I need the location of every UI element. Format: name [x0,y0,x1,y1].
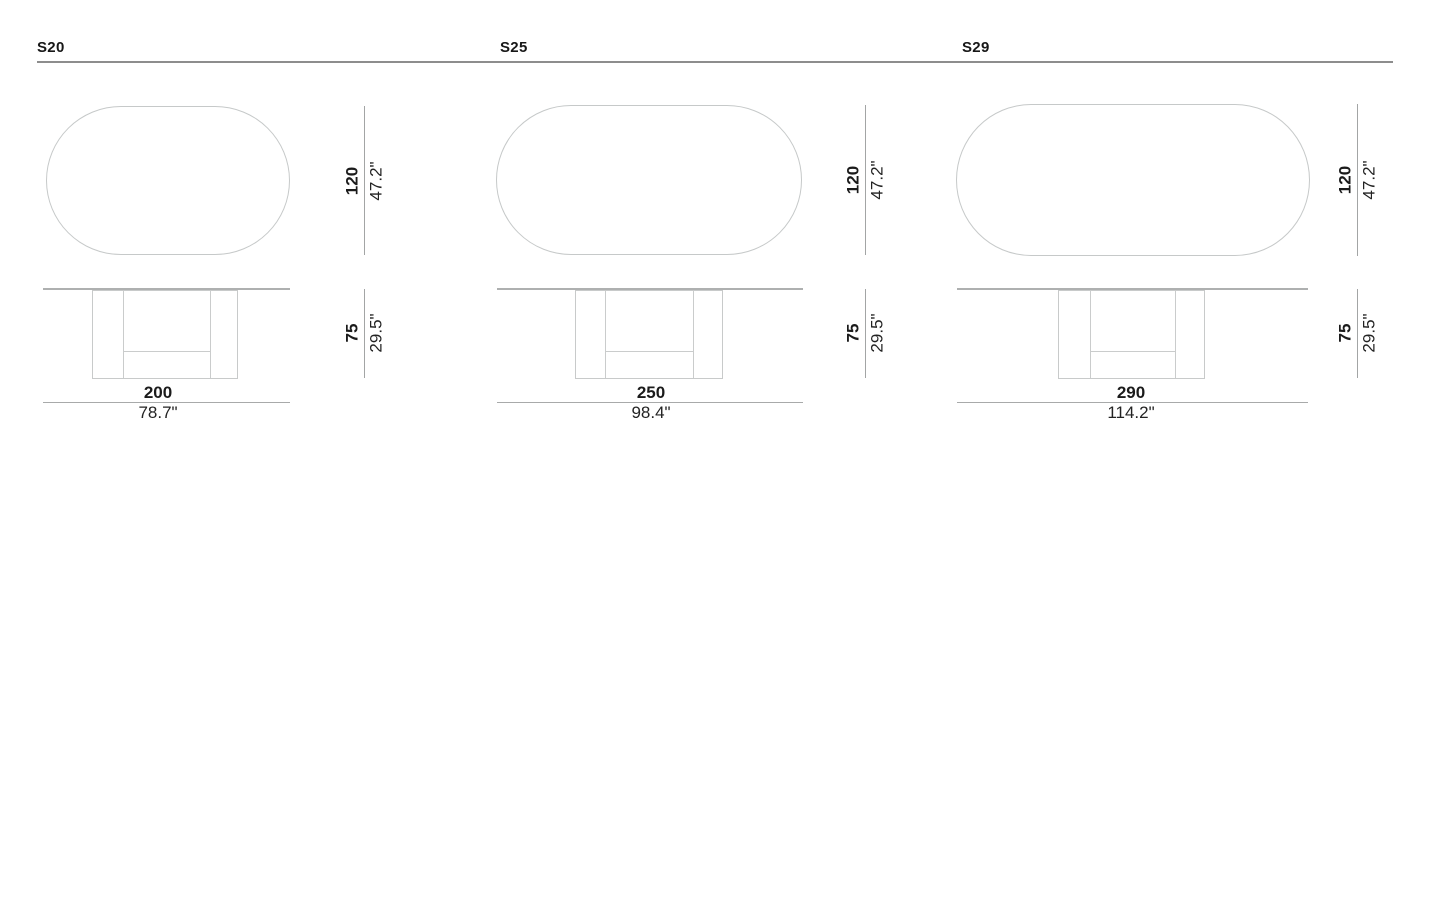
pedestal-shelf-line [1090,351,1176,352]
height-metric-value: 75 [845,324,862,343]
top-view-outline [956,104,1310,256]
length-metric-value: 290 [1061,384,1201,401]
pedestal-panel-line-left [605,291,606,378]
pedestal-panel-line-right [210,291,211,378]
header-rule [37,61,1393,63]
height-imperial-value: 29.5" [869,313,886,352]
length-metric-value: 250 [581,384,721,401]
pedestal-shelf-line [605,351,694,352]
pedestal-panel-line-left [123,291,124,378]
dimension-sheet: S20 120 47.2" 75 29.5" 200 78.7" S25 [0,0,1440,900]
length-metric-value: 200 [88,384,228,401]
model-label: S20 [37,39,65,56]
height-metric-value: 75 [344,324,361,343]
height-imperial-value: 29.5" [1361,313,1378,352]
length-imperial-value: 114.2" [1061,404,1201,421]
pedestal-panel-line-right [1175,291,1176,378]
top-view-outline [496,105,802,255]
height-metric-value: 75 [1337,324,1354,343]
pedestal-panel-line-left [1090,291,1091,378]
model-label: S25 [500,39,528,56]
model-label: S29 [962,39,990,56]
pedestal-panel-line-right [693,291,694,378]
length-imperial-value: 98.4" [581,404,721,421]
pedestal-outline [1058,290,1205,379]
length-imperial-value: 78.7" [88,404,228,421]
depth-imperial-value: 47.2" [869,160,886,199]
top-view-outline [46,106,290,255]
pedestal-shelf-line [123,351,211,352]
pedestal-outline [92,290,238,379]
depth-imperial-value: 47.2" [368,161,385,200]
depth-imperial-value: 47.2" [1361,160,1378,199]
depth-metric-value: 120 [1337,166,1354,194]
depth-metric-value: 120 [845,166,862,194]
height-imperial-value: 29.5" [368,313,385,352]
depth-metric-value: 120 [344,166,361,194]
pedestal-outline [575,290,723,379]
